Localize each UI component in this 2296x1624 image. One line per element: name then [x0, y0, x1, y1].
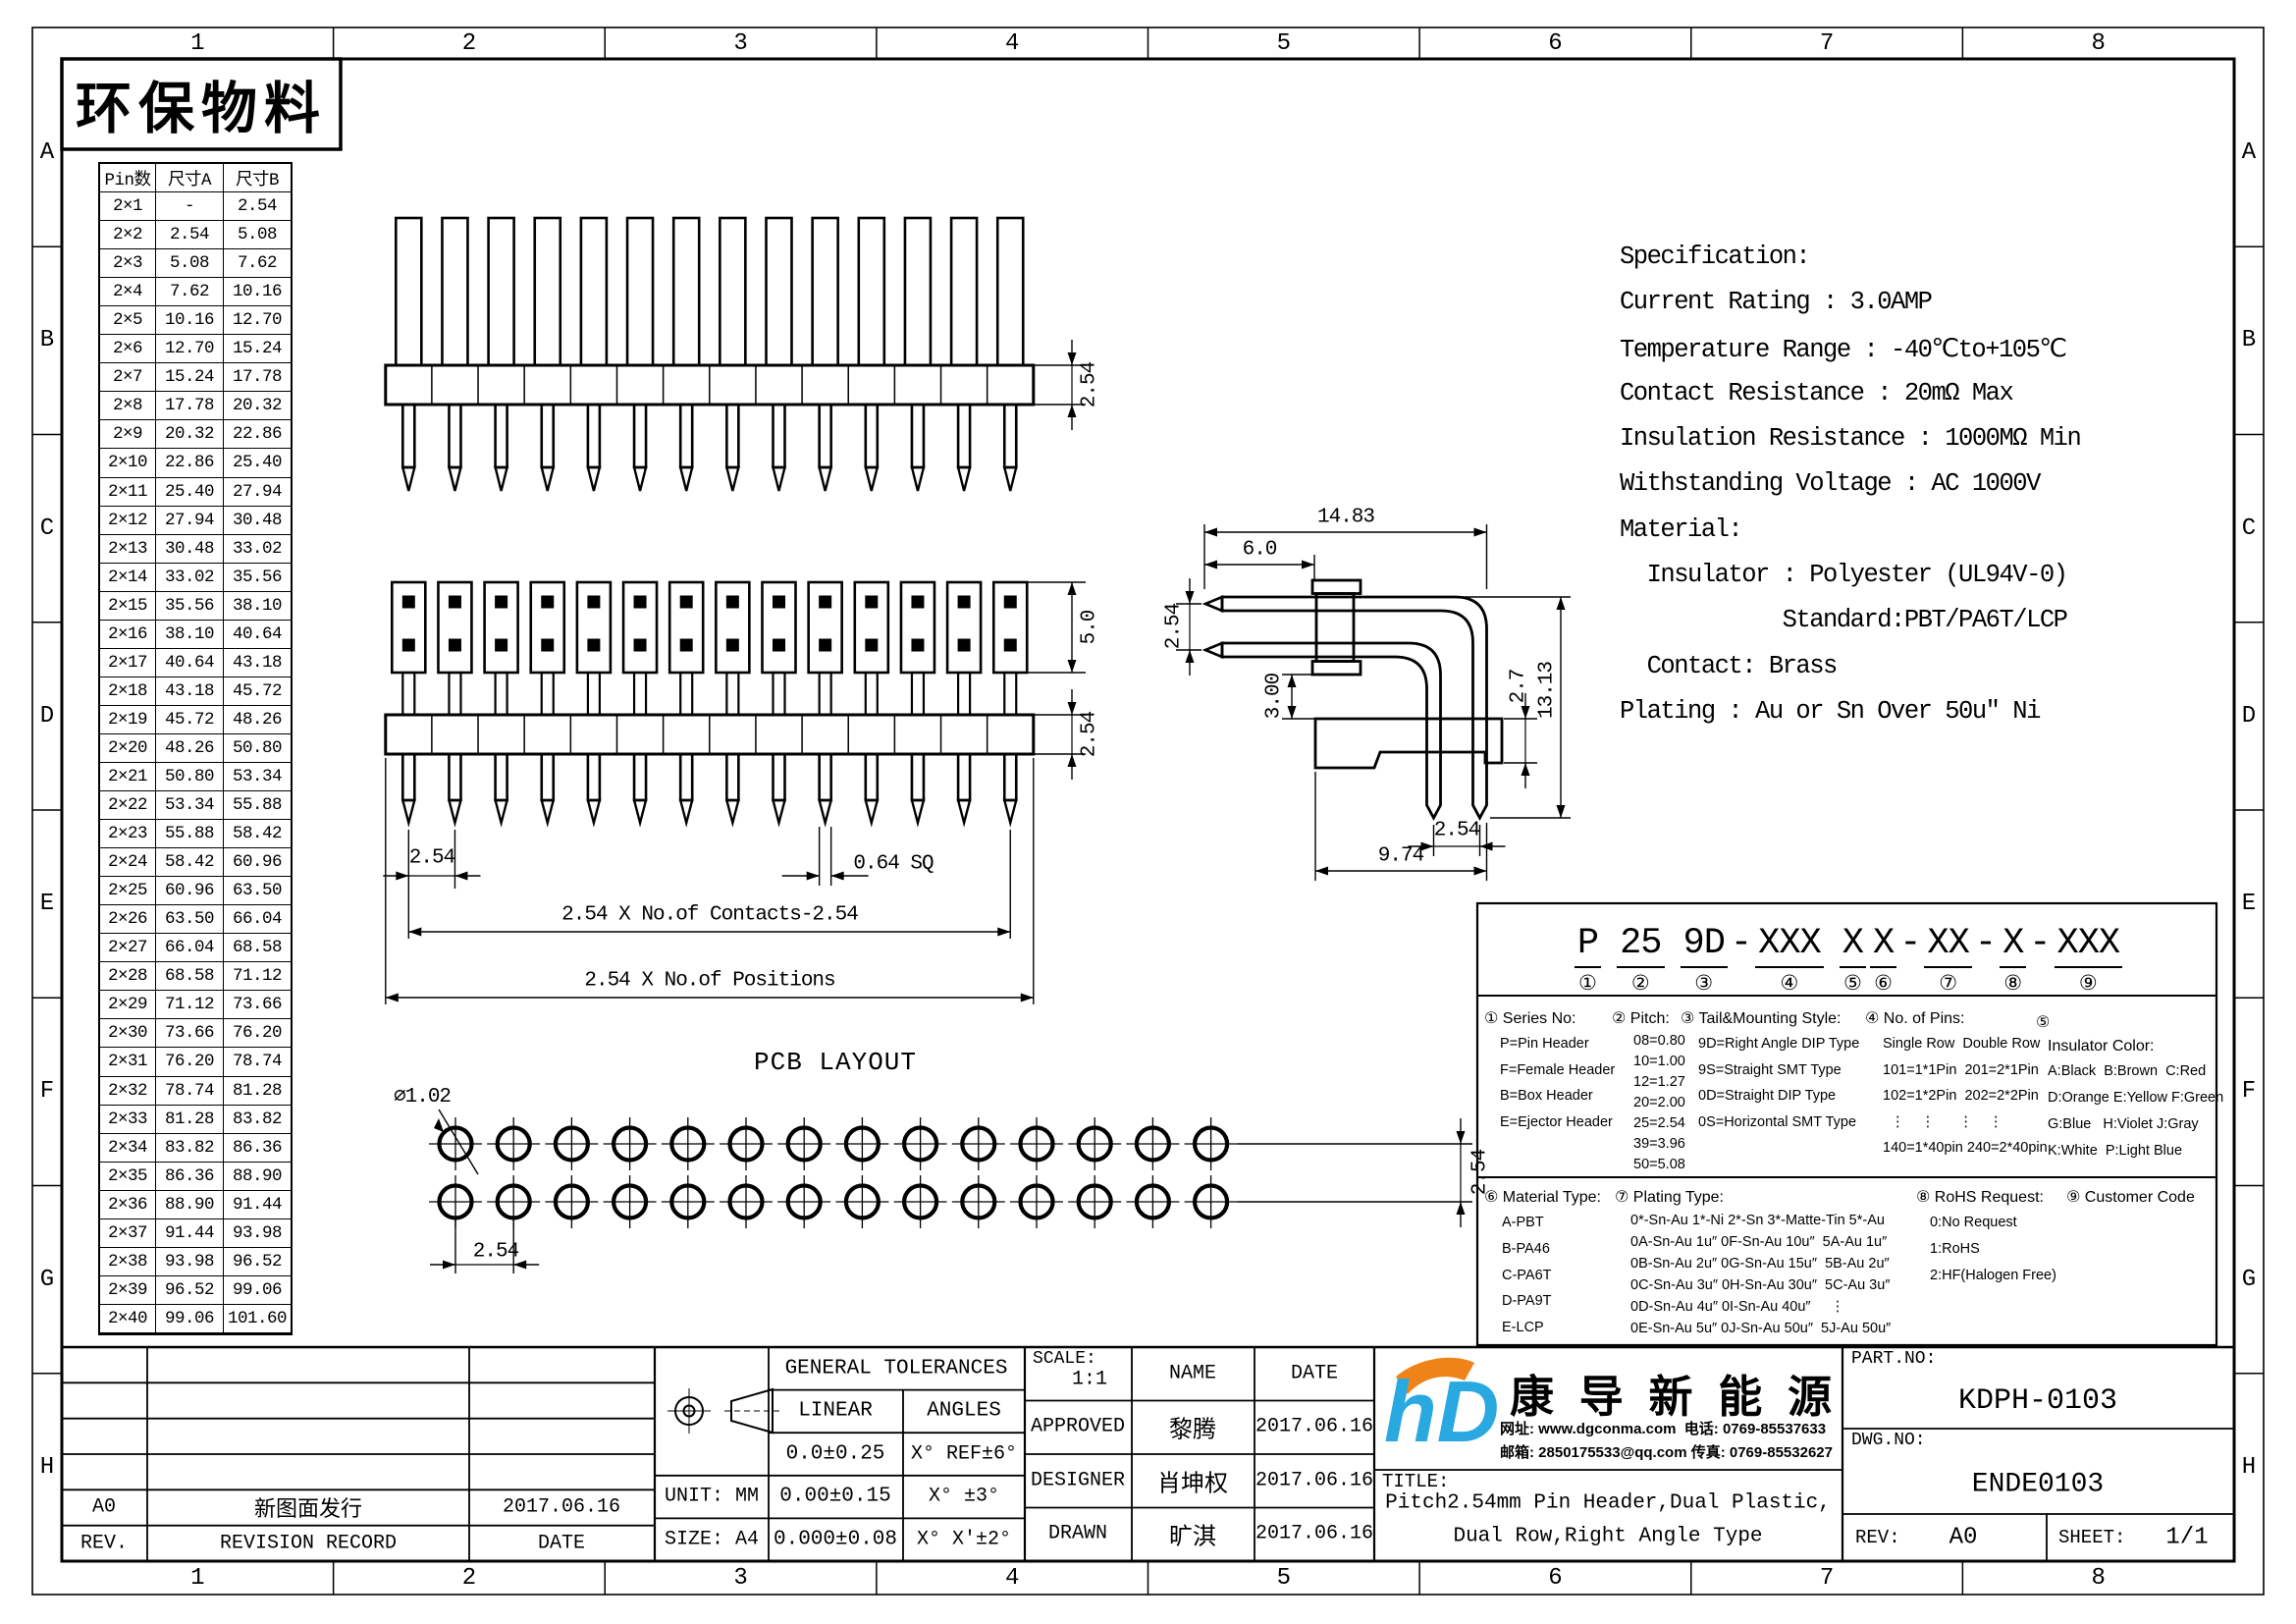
list-item: 1	[62, 27, 334, 59]
dim-label: 2.54	[473, 1241, 518, 1264]
title-block-text: DESIGNER	[1031, 1470, 1125, 1492]
table-cell: 45.72	[224, 677, 291, 706]
table-header-cell: 尺寸B	[224, 164, 291, 192]
table-cell: 2×22	[100, 791, 156, 820]
dim-label: 13.13	[1536, 662, 1559, 719]
table-row: 2×1843.1845.72	[100, 677, 291, 706]
legend-pitch: ② Pitch: 08=0.8010=1.0012=1.2720=2.0025=…	[1612, 1007, 1685, 1175]
company-name-char: 能	[1718, 1361, 1762, 1425]
list-item: 1:RoHS	[1930, 1236, 2056, 1263]
table-cell: 2×16	[100, 621, 156, 649]
dim-label: 0.64 SQ	[853, 853, 933, 876]
table-cell: 68.58	[224, 934, 291, 962]
title-block-text: DATE	[538, 1533, 585, 1555]
table-cell: 2×40	[100, 1305, 156, 1333]
table-cell: 2×10	[100, 449, 156, 477]
table-cell: 91.44	[156, 1219, 224, 1248]
list-item: 12=1.27	[1633, 1072, 1685, 1093]
pin-dimension-table: Pin数尺寸A尺寸B2×1-2.542×22.545.082×35.087.62…	[98, 162, 293, 1335]
list-item: 0*-Sn-Au 1*-Ni 2*-Sn 3*-Matte-Tin 5*-Au	[1630, 1210, 1891, 1231]
table-cell: 2×13	[100, 535, 156, 564]
list-item: E-LCP	[1502, 1315, 1601, 1341]
table-cell: 2×30	[100, 1019, 156, 1048]
dim-label: 6.0	[1243, 539, 1277, 562]
table-row: 2×3381.2883.82	[100, 1106, 291, 1134]
list-item: 5	[1148, 27, 1420, 59]
table-row: 2×47.6210.16	[100, 278, 291, 306]
table-cell: 38.10	[224, 592, 291, 621]
title-block-text: DATE	[1291, 1363, 1338, 1385]
table-cell: 33.02	[156, 564, 224, 592]
table-cell: 93.98	[156, 1248, 224, 1276]
title-block-text: X° X'±2°	[917, 1529, 1011, 1551]
title-block-text: X° ±3°	[929, 1486, 999, 1508]
table-cell: 2×38	[100, 1248, 156, 1276]
table-cell: 48.26	[224, 706, 291, 734]
list-item: A:Black B:Brown C:Red	[2048, 1058, 2223, 1085]
list-item: E=Ejector Header	[1500, 1110, 1615, 1136]
title-block-text: SHEET:	[2058, 1527, 2125, 1548]
table-row: 2×715.2417.78	[100, 363, 291, 392]
table-cell: 96.52	[156, 1276, 224, 1305]
table-row: 2×2253.3455.88	[100, 791, 291, 820]
table-row: 2×1740.6443.18	[100, 649, 291, 677]
list-item: 0A-Sn-Au 1u″ 0F-Sn-Au 10u″ 5A-Au 1u″	[1630, 1231, 1891, 1253]
list-item: Single Row Double Row	[1883, 1031, 2048, 1057]
title-block-text: 2017.06.16	[1255, 1470, 1373, 1492]
code-segment: P①	[1575, 921, 1601, 997]
title-block-text: REVISION RECORD	[220, 1533, 397, 1555]
eco-material-stamp: 环保物料	[62, 59, 341, 149]
table-cell: 45.72	[156, 706, 224, 734]
table-cell: 10.16	[224, 278, 291, 306]
list-item: C-PA6T	[1502, 1263, 1601, 1289]
table-row: 2×3278.7481.28	[100, 1077, 291, 1106]
table-cell: 2×36	[100, 1191, 156, 1219]
company-name-char: 康	[1510, 1361, 1554, 1425]
list-item: 0C-Sn-Au 3u″ 0H-Sn-Au 30u″ 5C-Au 3u″	[1630, 1274, 1891, 1296]
table-cell: 2×15	[100, 592, 156, 621]
part-number-code: P①25②9D③-XXX④X⑤X⑥-XX⑦-X⑧-XXX⑨	[1559, 921, 2138, 997]
table-cell: 2×2	[100, 221, 156, 249]
list-item: 9D=Right Angle DIP Type	[1698, 1031, 1859, 1057]
table-row: 2×2048.2650.80	[100, 734, 291, 763]
table-cell: 12.70	[156, 335, 224, 363]
list-item: C	[2234, 435, 2264, 623]
table-cell: 63.50	[156, 905, 224, 934]
list-item: F=Female Header	[1500, 1057, 1615, 1084]
table-row: 2×817.7820.32	[100, 392, 291, 420]
title-block-text: PART.NO:	[1851, 1349, 1936, 1369]
list-item: H	[2234, 1374, 2264, 1561]
list-item: 20=2.00	[1633, 1093, 1685, 1113]
list-item: 7	[1691, 27, 1963, 59]
table-row: 2×1330.4833.02	[100, 535, 291, 564]
table-cell: 2×27	[100, 934, 156, 962]
zone-columns-bottom: 12345678	[62, 1561, 2234, 1595]
zone-columns-top: 12345678	[62, 27, 2234, 59]
table-cell: 2×33	[100, 1106, 156, 1134]
list-item: 2	[334, 27, 606, 59]
title-block-text: 2017.06.16	[503, 1496, 620, 1519]
table-cell: 55.88	[224, 791, 291, 820]
title-block-text: ANGLES	[927, 1400, 1001, 1423]
table-cell: 20.32	[224, 392, 291, 420]
list-item: 25=2.54	[1633, 1113, 1685, 1134]
list-item: 3	[605, 1561, 877, 1595]
table-cell: 30.48	[224, 507, 291, 535]
table-row: 2×1535.5638.10	[100, 592, 291, 621]
legend-customer-code: ⑨ Customer Code	[2066, 1186, 2195, 1210]
title-block-text: REV:	[1855, 1527, 1900, 1548]
company-contact-line2: 邮箱: 2850175533@qq.com 传真: 0769-85532627	[1500, 1441, 1833, 1462]
table-header-cell: 尺寸A	[156, 164, 224, 192]
code-segment: X⑧	[2000, 921, 2026, 997]
table-row: 2×2766.0468.58	[100, 934, 291, 962]
list-item: Withstanding Voltage : AC 1000V	[1620, 469, 2080, 514]
pcb-layout-title: PCB LAYOUT	[754, 1048, 917, 1077]
list-item: G:Blue H:Violet J:Gray	[2048, 1111, 2223, 1138]
title-block-text: 0.000±0.08	[774, 1529, 897, 1551]
company-name-char: 新	[1648, 1361, 1692, 1425]
table-row: 2×510.1612.70	[100, 306, 291, 335]
table-cell: 25.40	[224, 449, 291, 477]
table-cell: 27.94	[224, 478, 291, 507]
list-item: D	[32, 623, 62, 810]
dim-label: 9.74	[1378, 845, 1423, 868]
table-row: 2×2458.4260.96	[100, 848, 291, 877]
table-cell: 2×11	[100, 478, 156, 507]
table-cell: 2×18	[100, 677, 156, 706]
table-cell: 17.78	[224, 363, 291, 392]
table-row: 2×612.7015.24	[100, 335, 291, 363]
table-row: 2×2868.5871.12	[100, 962, 291, 991]
title-block-text: A0	[92, 1496, 116, 1519]
dim-label: 2.54	[1163, 604, 1186, 649]
title-block-text: 旷淇	[1169, 1517, 1216, 1551]
list-item: ⋮ ⋮ ⋮ ⋮	[1883, 1110, 2048, 1136]
list-item: B-PA46	[1502, 1236, 1601, 1263]
list-item: Current Rating : 3.0AMP	[1620, 288, 2080, 333]
table-cell: 55.88	[156, 820, 224, 848]
table-cell: 2×28	[100, 962, 156, 991]
list-item: Standard:PBT/PA6T/LCP	[1620, 606, 2080, 651]
table-cell: 48.26	[156, 734, 224, 763]
table-cell: 2.54	[224, 192, 291, 221]
table-row: 2×35.087.62	[100, 249, 291, 278]
code-segment: 25②	[1617, 921, 1664, 997]
table-cell: 81.28	[224, 1077, 291, 1106]
list-item: 6	[1419, 27, 1691, 59]
table-row: 2×3176.2078.74	[100, 1048, 291, 1076]
code-separator: -	[1731, 921, 1752, 966]
list-item: 101=1*1Pin 201=2*1Pin	[1883, 1057, 2048, 1084]
table-cell: 76.20	[224, 1019, 291, 1048]
table-row: 2×1022.8625.40	[100, 449, 291, 477]
code-segment: X⑥	[1870, 921, 1896, 997]
table-cell: 2×19	[100, 706, 156, 734]
list-item: 9S=Straight SMT Type	[1698, 1057, 1859, 1084]
list-item: A-PBT	[1502, 1210, 1601, 1236]
table-cell: 27.94	[156, 507, 224, 535]
table-row: 2×2355.8858.42	[100, 820, 291, 848]
table-cell: 68.58	[156, 962, 224, 991]
list-item: 1	[62, 1561, 334, 1595]
code-segment: XXX⑨	[2055, 921, 2123, 997]
list-item: 4	[877, 27, 1148, 59]
table-row: 2×4099.06101.60	[100, 1305, 291, 1333]
table-row: 2×2971.1273.66	[100, 991, 291, 1019]
code-segment: X⑤	[1840, 921, 1866, 997]
table-header-row: Pin数尺寸A尺寸B	[100, 164, 291, 192]
table-cell: 50.80	[224, 734, 291, 763]
table-row: 2×3893.9896.52	[100, 1248, 291, 1276]
table-row: 2×3483.8286.36	[100, 1134, 291, 1163]
list-item: 8	[1962, 1561, 2234, 1595]
dim-label: 2.54	[1469, 1150, 1492, 1195]
legend-no-of-pins: ④ No. of Pins: Single Row Double Row101=…	[1865, 1007, 2048, 1162]
table-cell: 43.18	[156, 677, 224, 706]
code-separator: -	[1975, 921, 1997, 966]
title-block-text: 黎腾	[1169, 1410, 1216, 1444]
table-cell: 86.36	[156, 1163, 224, 1191]
table-row: 2×3073.6676.20	[100, 1019, 291, 1048]
list-item: 2	[334, 1561, 606, 1595]
table-cell: 2×17	[100, 649, 156, 677]
table-row: 2×2150.8053.34	[100, 763, 291, 791]
table-cell: 17.78	[156, 392, 224, 420]
company-contact-line1: 网址: www.dgconma.com 电话: 0769-85537633	[1500, 1418, 1826, 1438]
title-block-text: LINEAR	[798, 1400, 873, 1423]
title-block-text: KDPH-0103	[1958, 1384, 2117, 1418]
title-block-text: NAME	[1169, 1363, 1216, 1385]
dim-label: 3.00	[1263, 674, 1286, 719]
table-row: 2×920.3222.86	[100, 420, 291, 449]
list-item: D	[2234, 623, 2264, 810]
title-block-text: DRAWN	[1048, 1523, 1107, 1545]
table-cell: 43.18	[224, 649, 291, 677]
table-row: 2×3586.3688.90	[100, 1163, 291, 1191]
list-item: Contact Resistance : 20mΩ Max	[1620, 379, 2080, 424]
table-cell: 10.16	[156, 306, 224, 335]
table-row: 2×3688.9091.44	[100, 1191, 291, 1219]
code-segment: 9D③	[1681, 921, 1728, 997]
list-item: Insulator : Polyester (UL94V-0)	[1620, 561, 2080, 606]
title-block-text: 新图面发行	[254, 1491, 362, 1523]
dim-label: 2.54	[1079, 362, 1101, 407]
table-cell: 63.50	[224, 877, 291, 905]
list-item: Specification:	[1620, 243, 2080, 288]
list-item: 0:No Request	[1930, 1210, 2056, 1236]
table-cell: 53.34	[156, 791, 224, 820]
table-cell: 81.28	[156, 1106, 224, 1134]
table-cell: 38.10	[156, 621, 224, 649]
dim-label: 2.54 X No.of Contacts-2.54	[561, 904, 858, 927]
list-item: 6	[1419, 1561, 1691, 1595]
zone-rows-left: ABCDEFGH	[32, 59, 62, 1561]
list-item: 0E-Sn-Au 5u″ 0J-Sn-Au 50u″ 5J-Au 50u″	[1630, 1318, 1891, 1339]
table-row: 2×1638.1040.64	[100, 621, 291, 649]
list-item: 4	[877, 1561, 1148, 1595]
title-block-text: DWG.NO:	[1851, 1431, 1926, 1450]
list-item: G	[2234, 1186, 2264, 1374]
table-cell: 33.02	[224, 535, 291, 564]
table-cell: 25.40	[156, 478, 224, 507]
table-cell: 2×26	[100, 905, 156, 934]
table-cell: 2×12	[100, 507, 156, 535]
table-cell: 2×14	[100, 564, 156, 592]
table-cell: 2×20	[100, 734, 156, 763]
table-cell: 22.86	[156, 449, 224, 477]
list-item: 2:HF(Halogen Free)	[1930, 1263, 2056, 1289]
table-cell: 15.24	[224, 335, 291, 363]
list-item: 140=1*40pin 240=2*40pin	[1883, 1135, 2048, 1162]
table-cell: 2×6	[100, 335, 156, 363]
table-cell: 53.34	[224, 763, 291, 791]
title-block-text: Pitch2.54mm Pin Header,Dual Plastic,	[1385, 1492, 1831, 1515]
table-cell: 91.44	[224, 1191, 291, 1219]
svg-text:hD: hD	[1384, 1363, 1499, 1460]
title-block-text: 0.0±0.25	[786, 1443, 885, 1466]
table-row: 2×2560.9663.50	[100, 877, 291, 905]
title-block-text: A0	[1949, 1525, 1978, 1551]
table-cell: 58.42	[224, 820, 291, 848]
list-item: D-PA9T	[1502, 1288, 1601, 1315]
dim-label: 5.0	[1079, 611, 1101, 645]
table-cell: 2×7	[100, 363, 156, 392]
table-cell: 5.08	[224, 221, 291, 249]
table-cell: 50.80	[156, 763, 224, 791]
table-cell: 2×23	[100, 820, 156, 848]
list-item: B=Box Header	[1500, 1083, 1615, 1110]
table-row: 2×1433.0235.56	[100, 564, 291, 592]
table-cell: 12.70	[224, 306, 291, 335]
table-cell: 2×24	[100, 848, 156, 877]
code-segment: XXX④	[1755, 921, 1824, 997]
list-item: G	[32, 1186, 62, 1374]
table-row: 2×1125.4027.94	[100, 478, 291, 507]
list-item: 5	[1148, 1561, 1420, 1595]
table-cell: 86.36	[224, 1134, 291, 1163]
table-cell: 58.42	[156, 848, 224, 877]
title-block-text: 2017.06.16	[1255, 1416, 1373, 1438]
list-item: 50=5.08	[1633, 1155, 1685, 1175]
list-item: K:White P:Light Blue	[2048, 1138, 2223, 1164]
list-item: H	[32, 1374, 62, 1561]
table-header-cell: Pin数	[100, 164, 156, 192]
table-cell: 99.06	[224, 1276, 291, 1305]
table-cell: 2×21	[100, 763, 156, 791]
table-cell: 78.74	[156, 1077, 224, 1106]
company-name-char: 导	[1579, 1361, 1624, 1425]
table-cell: 99.06	[156, 1305, 224, 1333]
zone-rows-right: ABCDEFGH	[2234, 59, 2264, 1561]
drawing-sheet: 12345678 12345678 ABCDEFGH ABCDEFGH 环保物料…	[0, 0, 2296, 1624]
dim-label: 2.54	[1434, 820, 1479, 842]
list-item: Insulation Resistance : 1000MΩ Min	[1620, 424, 2080, 469]
table-cell: 7.62	[224, 249, 291, 278]
list-item: 0D=Straight DIP Type	[1698, 1083, 1859, 1110]
list-item: 102=1*2Pin 202=2*2Pin	[1883, 1083, 2048, 1110]
list-item: 8	[1962, 27, 2234, 59]
list-item: C	[32, 435, 62, 623]
list-item: E	[2234, 810, 2264, 998]
list-item: A	[2234, 59, 2264, 246]
table-cell: 101.60	[224, 1305, 291, 1333]
company-name: 康导新能源	[1510, 1361, 1832, 1425]
table-cell: 96.52	[224, 1248, 291, 1276]
title-block-text: 1/1	[2165, 1525, 2208, 1551]
table-cell: 2×4	[100, 278, 156, 306]
table-row: 2×3791.4493.98	[100, 1219, 291, 1248]
list-item: 7	[1691, 1561, 1963, 1595]
title-block-text: SCALE:	[1033, 1349, 1096, 1369]
table-row: 2×22.545.08	[100, 221, 291, 249]
dim-label: 2.54	[1079, 712, 1101, 757]
dim-label: ∅1.02	[394, 1083, 451, 1109]
list-item: 39=3.96	[1633, 1134, 1685, 1155]
table-row: 2×1-2.54	[100, 192, 291, 221]
title-block-text: GENERAL TOLERANCES	[785, 1358, 1008, 1380]
table-cell: 93.98	[224, 1219, 291, 1248]
table-cell: 73.66	[156, 1019, 224, 1048]
table-cell: 83.82	[224, 1106, 291, 1134]
table-cell: 30.48	[156, 535, 224, 564]
table-cell: 35.56	[156, 592, 224, 621]
code-separator: -	[2029, 921, 2051, 966]
legend-plating-type: ⑦ Plating Type: 0*-Sn-Au 1*-Ni 2*-Sn 3*-…	[1615, 1186, 1891, 1339]
title-block-text: SIZE: A4	[665, 1529, 759, 1551]
table-cell: -	[156, 192, 224, 221]
table-cell: 66.04	[156, 934, 224, 962]
table-cell: 2×5	[100, 306, 156, 335]
table-cell: 2×35	[100, 1163, 156, 1191]
title-block-text: X° REF±6°	[911, 1443, 1017, 1466]
title-block-text: 2017.06.16	[1255, 1523, 1373, 1545]
table-row: 2×2663.5066.04	[100, 905, 291, 934]
list-item: 0S=Horizontal SMT Type	[1698, 1110, 1859, 1136]
table-cell: 2×8	[100, 392, 156, 420]
table-cell: 7.62	[156, 278, 224, 306]
list-item: P=Pin Header	[1500, 1031, 1615, 1057]
table-row: 2×3996.5299.06	[100, 1276, 291, 1305]
list-item: F	[2234, 998, 2264, 1185]
title-block-text: Dual Row,Right Angle Type	[1453, 1526, 1762, 1548]
table-cell: 73.66	[224, 991, 291, 1019]
dim-label: 14.83	[1317, 507, 1374, 529]
table-cell: 2×31	[100, 1048, 156, 1076]
list-item: Plating : Au or Sn Over 50u″ Ni	[1620, 697, 2080, 742]
list-item: 08=0.80	[1633, 1031, 1685, 1052]
table-cell: 5.08	[156, 249, 224, 278]
legend-tail-mounting: ③ Tail&Mounting Style: 9D=Right Angle DI…	[1681, 1007, 1859, 1135]
list-item: Temperature Range : -40℃to+105℃	[1620, 334, 2080, 379]
legend-insulator-color: ⑤ Insulator Color: A:Black B:Brown C:Red…	[2036, 1011, 2223, 1164]
table-cell: 2×32	[100, 1077, 156, 1106]
code-separator: -	[1899, 921, 1921, 966]
title-block-text: 肖坤权	[1157, 1464, 1228, 1498]
table-cell: 2×25	[100, 877, 156, 905]
legend-material-type: ⑥ Material Type: A-PBTB-PA46C-PA6TD-PA9T…	[1484, 1186, 1601, 1341]
list-item: E	[32, 810, 62, 998]
table-cell: 71.12	[156, 991, 224, 1019]
title-block-text: UNIT: MM	[665, 1486, 759, 1508]
table-cell: 2×3	[100, 249, 156, 278]
table-cell: 20.32	[156, 420, 224, 449]
title-block-text: 1:1	[1072, 1369, 1107, 1391]
table-row: 2×1945.7248.26	[100, 706, 291, 734]
title-block-text: 0.00±0.15	[779, 1486, 890, 1508]
